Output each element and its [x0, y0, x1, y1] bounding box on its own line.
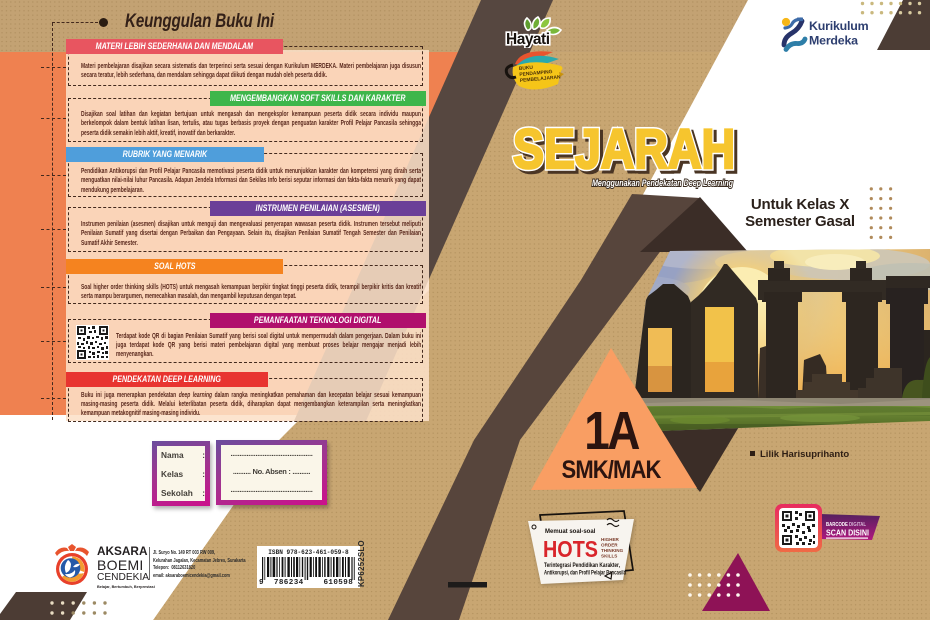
svg-text:SKILLS: SKILLS: [601, 554, 617, 559]
svg-text:Kurikulum: Kurikulum: [809, 19, 869, 33]
svg-text:Menggunakan Pendekatan Deep Le: Menggunakan Pendekatan Deep Learning: [592, 178, 733, 188]
svg-text:HOTS: HOTS: [543, 536, 598, 562]
svg-text:Memuat soal-soal: Memuat soal-soal: [545, 529, 596, 535]
svg-text:SCAN DISINI: SCAN DISINI: [826, 528, 869, 538]
svg-text:Terintegrasi Pendidikan Karakt: Terintegrasi Pendidikan Karakter,: [544, 562, 620, 569]
svg-text:ORDER: ORDER: [601, 543, 618, 548]
svg-text:Merdeka: Merdeka: [809, 34, 858, 48]
svg-text:HIGHER: HIGHER: [601, 537, 620, 542]
svg-text:SEJARAH: SEJARAH: [513, 117, 735, 180]
svg-text:THINKING: THINKING: [601, 548, 624, 553]
svg-text:Antikorupsi, dan Profil Pelaja: Antikorupsi, dan Profil Pelajar Pancasil…: [544, 570, 626, 577]
